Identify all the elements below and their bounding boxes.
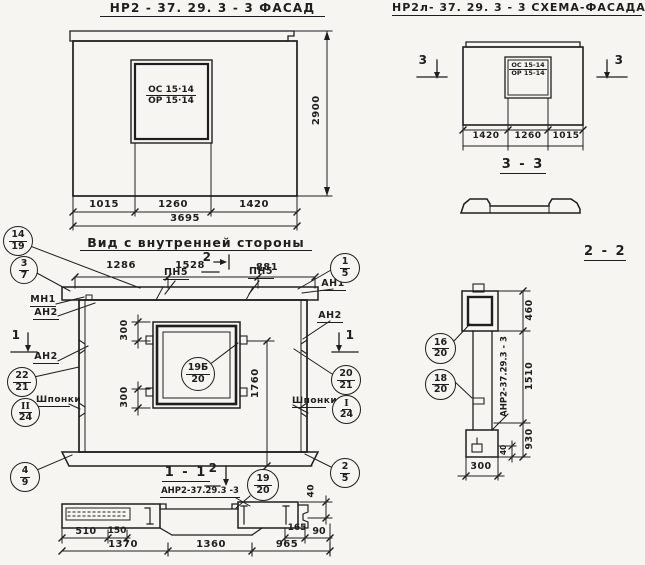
callout-bottom: 5 [341,474,350,484]
callout-1-5: 1 5 [330,253,360,283]
section11-dim-165: 165 [284,524,310,533]
inner-label-an2-left: АН2 [33,352,59,364]
callout-14-19: 14 19 [3,226,33,256]
facade-dim-2900: 2900 [312,90,323,130]
schema-marker-3-right: 3 [612,54,626,67]
inner-label-shponki-left: Шпонки [36,396,70,407]
callout-2-5: 2 5 [330,458,360,488]
inner-dim-300-bottom: 300 [120,382,130,412]
section22-dim-930: 930 [525,425,535,453]
section11-dim-150: 150 [103,527,131,536]
callout-bottom: 5 [341,269,350,279]
callout-19b-20: 19Б 20 [181,357,215,391]
facade-window-mark-bottom: ОР 15·14 [140,96,202,106]
callout-22-21: 22 21 [7,367,37,397]
callout-bottom: 24 [18,413,33,423]
section22-title: 2 - 2 [584,245,626,261]
schema-marker-3-left: 3 [416,54,430,67]
section11-subtitle: АНР2-37.29.3 -3 [160,487,240,498]
callout-4-9: 4 9 [10,462,40,492]
section22-dim-1510: 1510 [525,358,535,394]
callout-top: 19Б [186,363,210,374]
callout-bottom: 20 [255,486,270,496]
facade-dim-1260: 1260 [153,200,193,211]
callout-16-20: 16 20 [425,333,456,364]
callout-19-20: 19 20 [247,469,279,501]
schema-dim-1420: 1420 [466,132,506,141]
callout-bottom: 20 [190,375,205,385]
schema-dim-1260: 1260 [509,132,547,141]
inner-view-title: Вид с внутренней стороны [80,236,312,251]
section11-dim-510: 510 [68,527,104,537]
inner-label-pn5-2: ПН5 [248,267,274,279]
section22-dim-460: 460 [525,296,535,324]
callout-top: 3 [19,259,30,270]
schema-title: НР2л- 37. 29. 3 - 3 СХЕМА-ФАСАДА [392,2,642,16]
section22-linework [453,284,530,480]
callout-bottom: 21 [338,381,353,391]
section33-title: 3 - 3 [500,158,546,174]
callout-bottom: 20 [433,349,448,359]
inner-dim-300-top: 300 [120,315,130,345]
schema-window-mark-bottom: ОР 15-14 [507,70,549,77]
section11-dim-965: 965 [268,540,306,551]
facade-window-mark-top: ОС 15·14 [146,85,196,96]
callout-top: 22 [13,371,30,382]
callout-top: 19 [254,474,271,485]
facade-dim-3695: 3695 [165,214,205,225]
section11-dim-1370: 1370 [100,540,146,551]
section22-vertical-label: АНР2-37.29.3 - 3 [501,328,510,424]
inner-marker-2: 2 [200,251,214,264]
callout-bottom: 9 [21,478,30,488]
facade-dim-1015: 1015 [84,200,124,211]
callout-top: 4 [20,466,31,477]
facade-dim-1420: 1420 [234,200,274,211]
section11-marker-2: 2 [206,462,220,475]
callout-18-20: 18 20 [425,369,456,400]
section22-dim-300: 300 [464,462,498,472]
callout-top: 2 [340,462,351,473]
inner-dim-1760: 1760 [251,365,262,401]
inner-marker-1-right: 1 [344,329,356,342]
facade-window-mark: ОС 15·14 ОР 15·14 [140,85,202,107]
inner-dim-1286: 1286 [100,261,142,272]
facade-title: НР2 - 37. 29. 3 - 3 ФАСАД [100,2,325,17]
callout-bottom: 21 [14,383,29,393]
section11-title: 1 - 1 [162,466,210,482]
callout-top: 14 [9,230,26,241]
callout-I-24: I 24 [332,395,361,424]
callout-bottom: 24 [339,410,354,420]
section11-dim-1360: 1360 [188,540,234,551]
callout-bottom: 20 [433,385,448,395]
callout-20-21: 20 21 [331,365,361,395]
section33-linework [461,199,580,213]
inner-label-mn1: МН1 [30,295,56,307]
section22-dim-40: 40 [500,442,508,458]
blueprint-sheet: НР2 - 37. 29. 3 - 3 ФАСАД ОС 15·14 ОР 15… [0,0,645,565]
callout-II-24: II 24 [11,398,40,427]
inner-label-pn5-1: ПН5 [163,268,189,280]
inner-label-an2-right: АН2 [317,311,343,323]
inner-label-an2-left-top: АН2 [33,308,59,320]
section11-dim-90: 90 [308,527,330,537]
inner-label-shponki-right: Шпонки [292,397,326,408]
schema-window-mark: ОС 15-14 ОР 15-14 [507,62,549,78]
schema-dim-1015: 1015 [549,132,583,141]
section11-dim-40: 40 [307,482,316,500]
callout-top: 20 [337,369,354,380]
inner-marker-1-left: 1 [10,329,22,342]
callout-3-7: 3 7 [10,256,38,284]
callout-top: 1 [340,257,351,268]
callout-bottom: 7 [20,271,29,281]
callout-bottom: 19 [10,242,25,252]
